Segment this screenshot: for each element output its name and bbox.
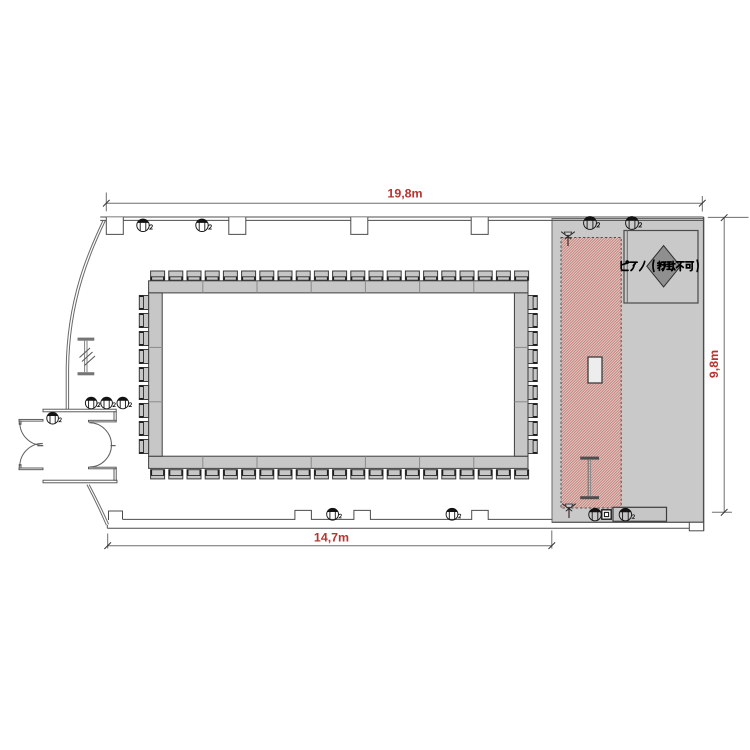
svg-text:14,7m: 14,7m bbox=[314, 530, 349, 544]
svg-text:9,8m: 9,8m bbox=[707, 350, 721, 378]
svg-text:19,8m: 19,8m bbox=[387, 187, 422, 201]
